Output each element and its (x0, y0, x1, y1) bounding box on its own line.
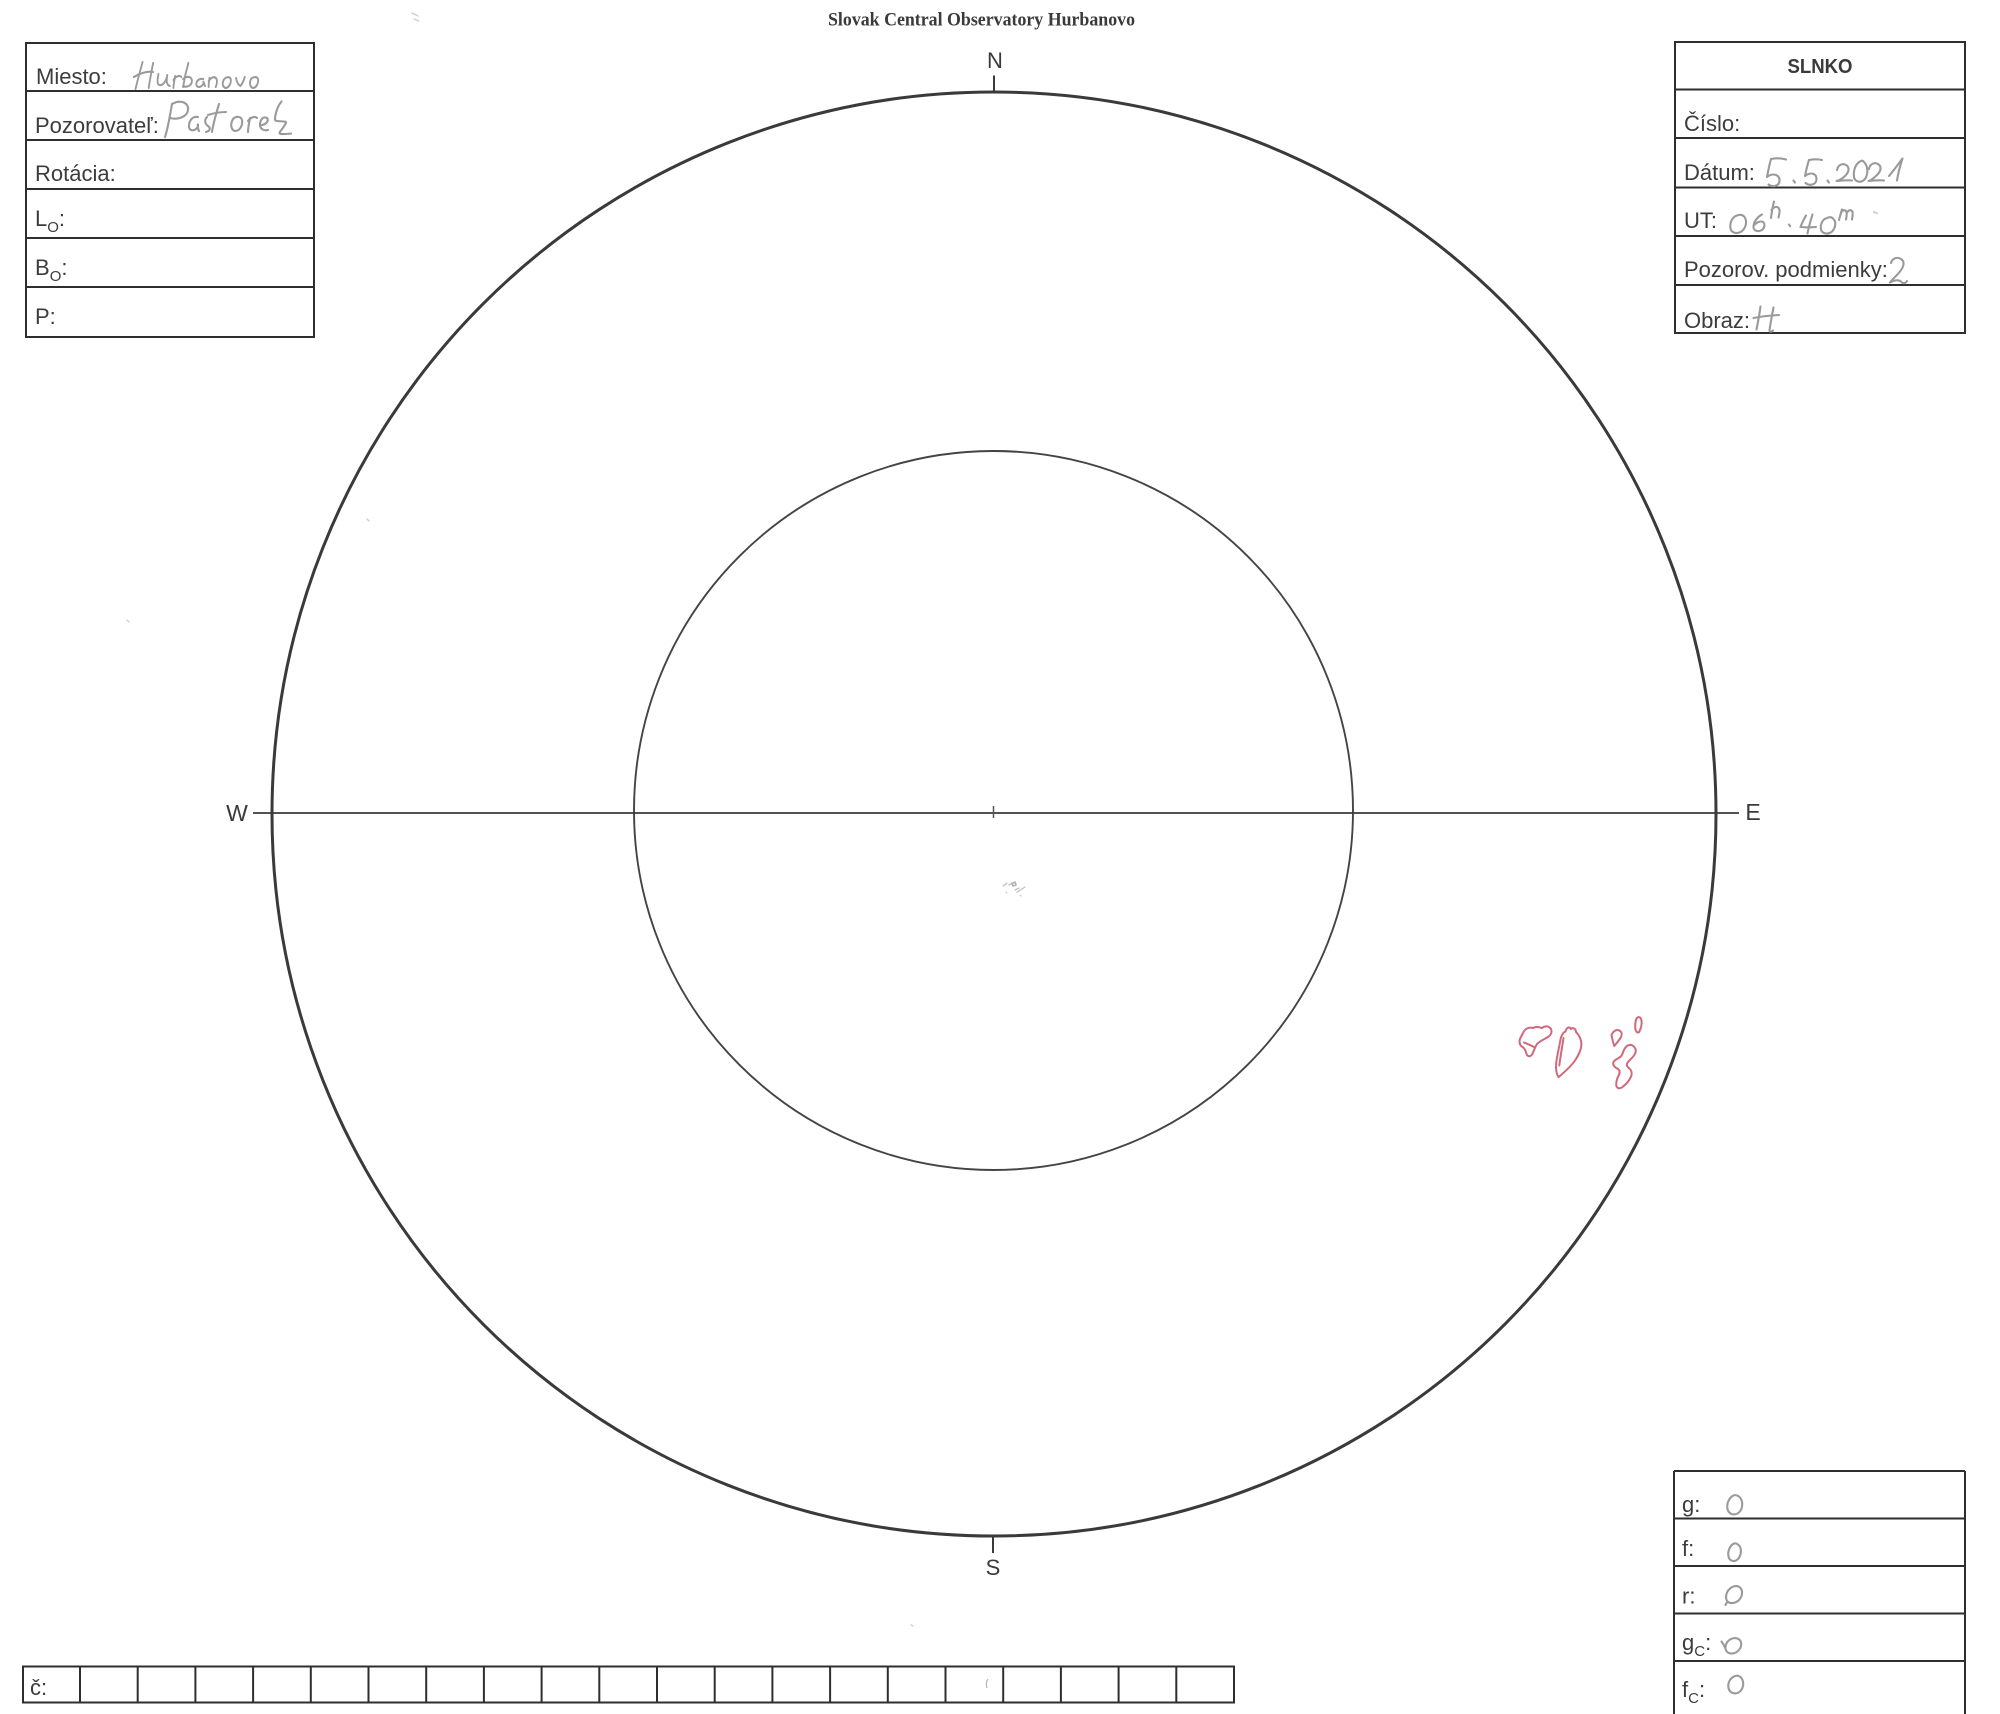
svg-text:Slovak Central Observatory Hur: Slovak Central Observatory Hurbanovo (828, 10, 1135, 31)
svg-text:Dátum:: Dátum: (1684, 160, 1755, 185)
svg-text:Číslo:: Číslo: (1684, 111, 1740, 136)
svg-text:S: S (986, 1555, 1001, 1580)
svg-text:N: N (987, 48, 1003, 73)
svg-text:f:: f: (1682, 1536, 1694, 1561)
svg-text:r:: r: (1682, 1584, 1695, 1609)
svg-text:W: W (226, 800, 248, 826)
svg-text:Obraz:: Obraz: (1684, 308, 1750, 333)
svg-text:Miesto:: Miesto: (36, 64, 107, 89)
svg-text:UT:: UT: (1684, 208, 1717, 233)
svg-text:E: E (1745, 799, 1760, 825)
svg-text:Pozorovateľ:: Pozorovateľ: (35, 113, 159, 138)
svg-text:P:: P: (35, 304, 56, 329)
svg-text:SLNKO: SLNKO (1788, 56, 1853, 78)
svg-text:Rotácia:: Rotácia: (35, 161, 116, 186)
svg-text:Pozorov. podmienky:: Pozorov. podmienky: (1684, 257, 1888, 282)
svg-text:č:: č: (30, 1675, 47, 1700)
svg-text:g:: g: (1682, 1492, 1700, 1517)
